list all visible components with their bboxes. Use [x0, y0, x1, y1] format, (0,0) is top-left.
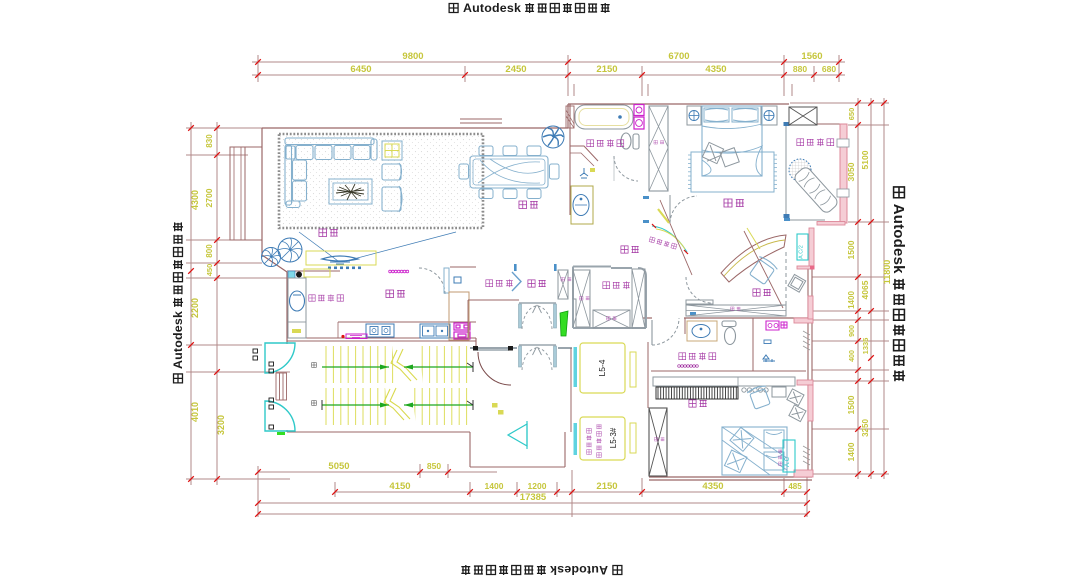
svg-text:850: 850 [427, 461, 441, 471]
svg-text:900: 900 [849, 325, 856, 337]
svg-text:650: 650 [847, 108, 856, 121]
svg-text:Autodesk: Autodesk [550, 563, 608, 576]
svg-text:4150: 4150 [389, 481, 410, 492]
svg-text:6700: 6700 [668, 51, 689, 62]
svg-text:2150: 2150 [596, 481, 617, 492]
svg-text:4350: 4350 [702, 481, 723, 492]
svg-text:800: 800 [205, 244, 214, 258]
svg-text:2700: 2700 [204, 188, 214, 207]
svg-text:4300: 4300 [190, 190, 200, 210]
svg-text:2450: 2450 [505, 64, 526, 75]
svg-text:830: 830 [205, 134, 214, 148]
svg-text:4350: 4350 [705, 64, 726, 75]
svg-text:1400: 1400 [847, 291, 856, 309]
svg-text:A.C/2: A.C/2 [799, 245, 805, 259]
svg-text:5050: 5050 [328, 461, 349, 472]
svg-text:Autodesk: Autodesk [890, 204, 907, 274]
svg-text:450: 450 [205, 264, 214, 277]
svg-text:A.C: A.C [785, 456, 791, 467]
svg-text:1400: 1400 [485, 481, 504, 491]
svg-text:485: 485 [788, 482, 802, 491]
svg-text:11800: 11800 [882, 260, 892, 285]
svg-text:17385: 17385 [520, 492, 547, 503]
svg-text:880: 880 [793, 64, 807, 74]
svg-text:400: 400 [849, 350, 856, 362]
svg-text:3200: 3200 [216, 415, 226, 435]
svg-text:L5-4: L5-4 [597, 359, 607, 376]
svg-text:3250: 3250 [861, 419, 870, 437]
svg-text:Autodesk: Autodesk [463, 1, 521, 15]
svg-text:680: 680 [822, 64, 836, 74]
svg-text:1560: 1560 [801, 51, 822, 62]
svg-text:L5-3#: L5-3# [609, 427, 618, 448]
svg-text:1200: 1200 [528, 481, 547, 491]
svg-text:1335: 1335 [861, 338, 870, 355]
svg-text:9800: 9800 [402, 51, 423, 62]
svg-text:5100: 5100 [860, 150, 870, 169]
svg-text:6450: 6450 [350, 64, 371, 75]
svg-text:1400: 1400 [846, 442, 856, 461]
svg-text:1500: 1500 [846, 395, 856, 414]
svg-text:4065: 4065 [860, 280, 870, 299]
svg-text:2150: 2150 [596, 64, 617, 75]
svg-text:Autodesk: Autodesk [171, 311, 185, 369]
svg-text:2200: 2200 [190, 298, 200, 318]
svg-text:1500: 1500 [846, 240, 856, 259]
svg-text:4010: 4010 [190, 402, 200, 422]
